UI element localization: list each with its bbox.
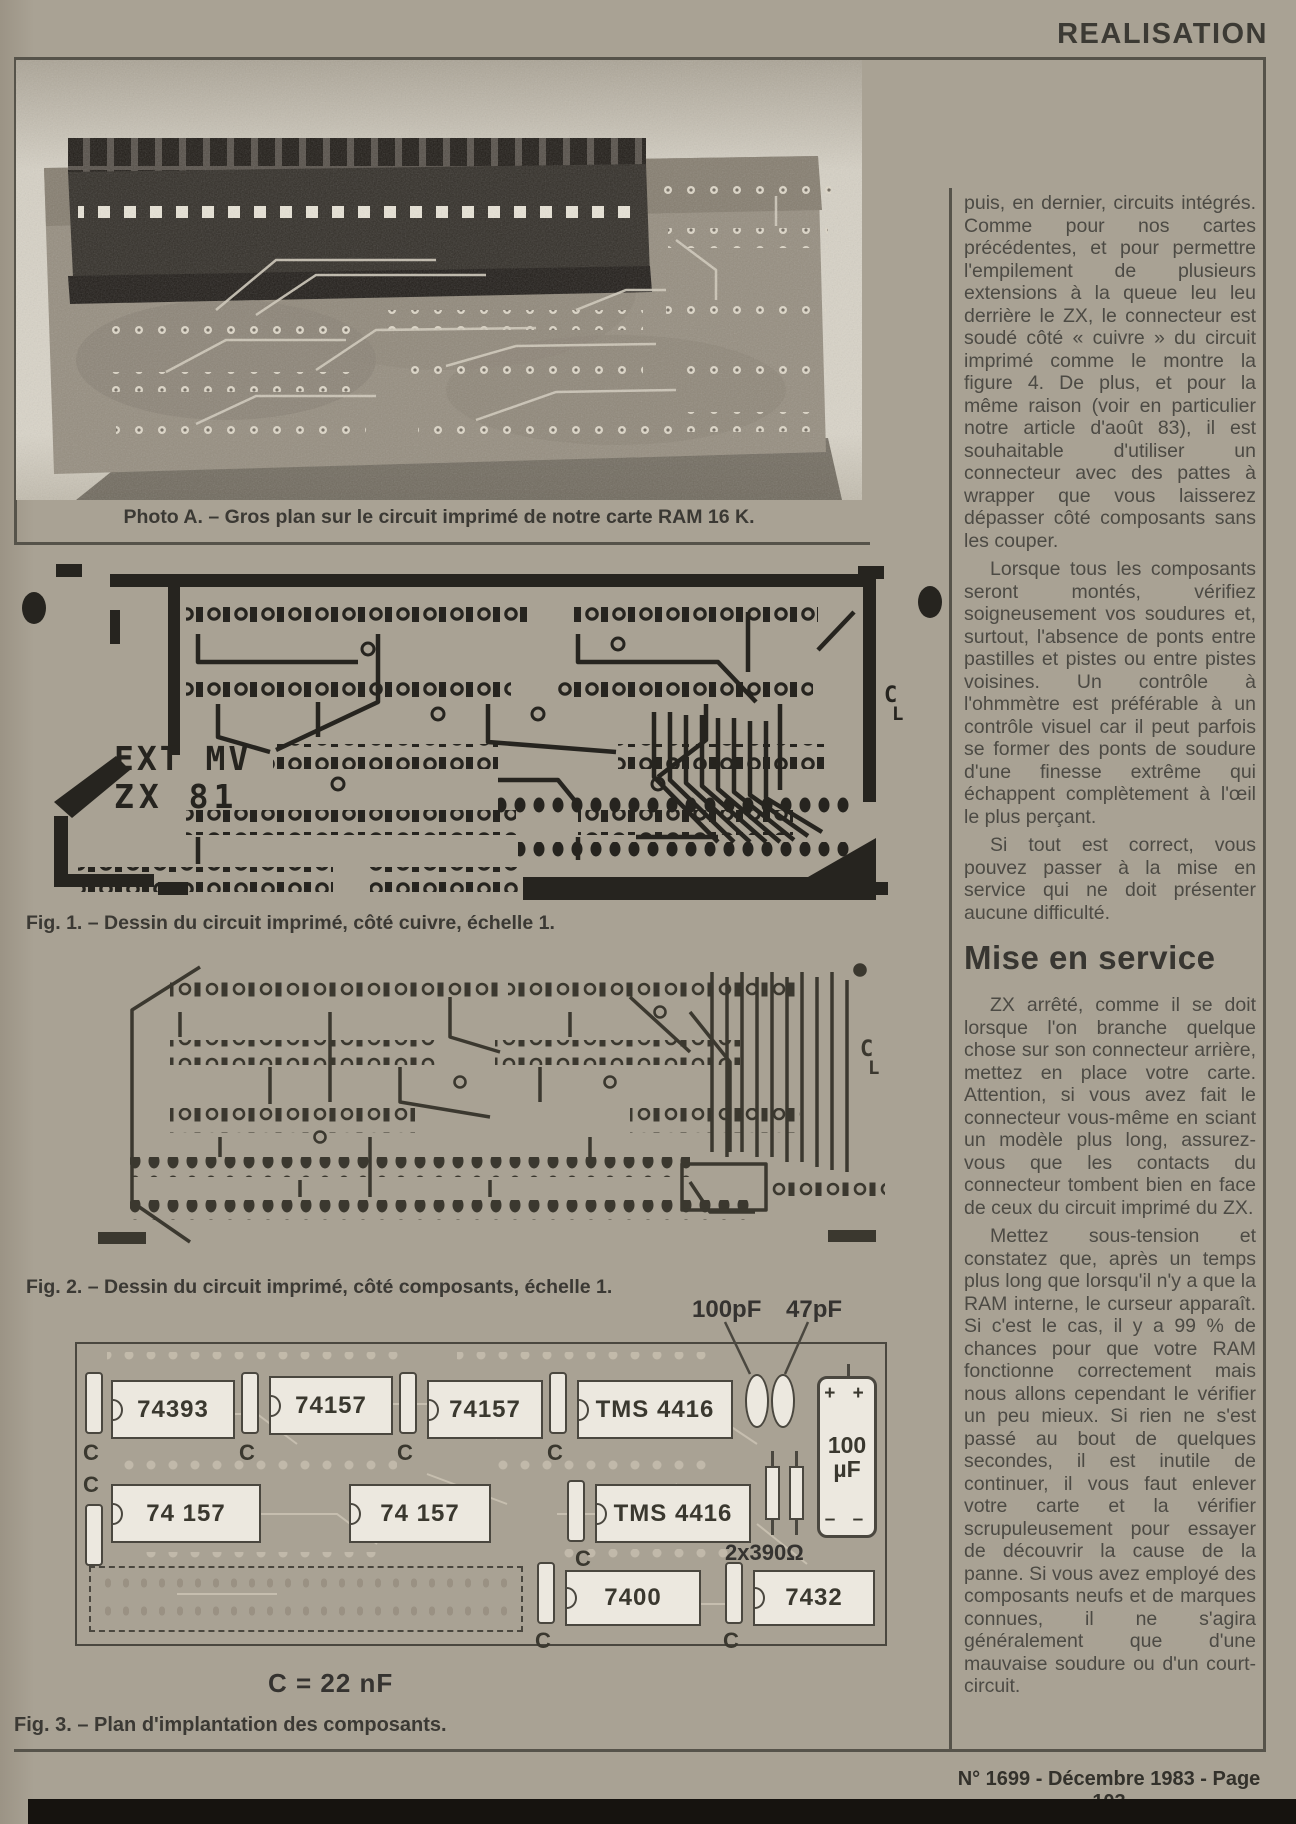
resistor-390 [789,1466,804,1520]
ic-label: 7400 [604,1584,661,1612]
electrolytic-100uf: + + 100 µF – – [817,1376,877,1538]
resistor-390 [765,1466,780,1520]
ic-7432: 7432 [753,1570,875,1626]
ic-label: TMS 4416 [596,1396,715,1424]
cap-c [399,1372,417,1434]
article-paragraph: Si tout est correct, vous pouvez passer … [964,834,1256,924]
svg-text:L: L [892,703,903,725]
article-paragraph: Mettez sous-tension et constatez que, ap… [964,1225,1256,1698]
ic-label: 7432 [785,1584,842,1612]
ic-7400: 7400 [565,1570,701,1626]
section-heading: Mise en service [964,940,1256,976]
c-label: C [239,1440,255,1466]
c-label: C [723,1628,739,1654]
ic-74157-b: 74157 [427,1380,543,1439]
cap-c [241,1372,259,1434]
cap-c [85,1504,103,1566]
article-paragraph: puis, en dernier, circuits intégrés. Com… [964,192,1256,552]
article-paragraph: Lorsque tous les composants seront monté… [964,558,1256,828]
ic-74157-d: 74 157 [349,1484,491,1543]
cap-c [725,1562,743,1624]
cap-47pf [771,1374,795,1428]
column-left-rule [949,188,952,1752]
cap-c [567,1480,585,1542]
fig1-caption: Fig. 1. – Dessin du circuit imprimé, côt… [26,912,555,935]
fig3-implantation-plan: 74393 74157 74157 TMS 4416 + + 100 µF – … [75,1342,887,1646]
fig2-cl-mark: C L [860,1037,879,1079]
svg-text:L: L [868,1057,879,1079]
photo-frame-bottom [14,542,870,545]
fig2-registration-marks [98,1230,876,1244]
fig3-caption: Fig. 3. – Plan d'implantation des compos… [14,1714,447,1737]
electrolytic-value: 100 µF [828,1433,866,1481]
c-label: C [535,1628,551,1654]
section-header: REALISATION [1000,18,1268,51]
ic-label: TMS 4416 [614,1500,733,1528]
c-label: C [547,1440,563,1466]
c-label: C [83,1472,99,1498]
c-label: C [575,1546,591,1572]
ic-label: 74 157 [146,1500,225,1528]
edge-connector-outline [89,1566,523,1632]
photo-caption: Photo A. – Gros plan sur le circuit impr… [16,506,862,529]
ic-74393: 74393 [111,1380,235,1439]
cap-100pf [745,1374,769,1428]
fig2-pcb-component-drawing: C L [70,952,895,1250]
cap-c [537,1562,555,1624]
svg-text:ZX 81: ZX 81 [114,777,238,816]
ic-74157-c: 74 157 [111,1484,261,1543]
svg-text:EXT MV: EXT MV [114,739,251,778]
column-right-rule [1263,57,1266,1752]
c-label: C [83,1440,99,1466]
cap-c [85,1372,103,1434]
photo-pcb-ram-card [16,60,862,500]
ic-tms4416-b: TMS 4416 [595,1484,751,1543]
ic-74157-a: 74157 [269,1376,393,1435]
bottom-rule [14,1749,1266,1752]
fig2-caption: Fig. 2. – Dessin du circuit imprimé, côt… [26,1276,612,1299]
ic-label: 74393 [137,1396,209,1424]
article-column: puis, en dernier, circuits intégrés. Com… [964,192,1256,1704]
c-label: C [397,1440,413,1466]
ic-label: 74157 [295,1392,367,1420]
connector-pad-row [99,1574,507,1592]
article-paragraph: ZX arrêté, comme il se doit lorsque l'on… [964,994,1256,1219]
capacitor-value-note: C = 22 nF [268,1668,393,1699]
ic-tms4416-a: TMS 4416 [577,1380,733,1439]
polarity-minus: – – [825,1509,869,1531]
fig1-pcb-copper-drawing: EXT MV ZX 81 C L [18,552,946,910]
polarity-plus: + + [824,1383,869,1405]
cap-c [549,1372,567,1434]
ic-label: 74157 [449,1396,521,1424]
connector-pad-row [99,1602,507,1620]
ic-label: 74 157 [380,1500,459,1528]
magazine-page: REALISATION [0,0,1296,1824]
scan-bottom-bar [28,1799,1296,1824]
